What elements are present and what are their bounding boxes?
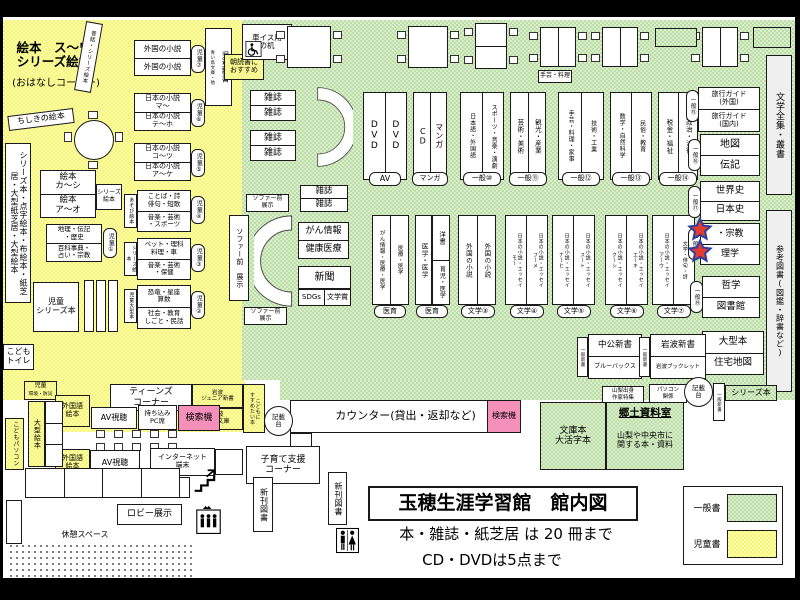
shelf-jido-6-label: 日本の小説 テ〜ホ (135, 112, 190, 131)
chair (578, 32, 587, 40)
shelf-bungaku-3-label: 外国の小説 (459, 216, 477, 304)
shelf-zasshi-label: 雑誌 (251, 105, 295, 120)
corner-shelf (655, 28, 697, 47)
shelf-jido-3-label: 音楽・芸術 ・保健 (138, 259, 190, 280)
shelf-tetsugaku-label: 図書館 (703, 297, 759, 318)
kyukei-space-label: 休憩スペース (54, 529, 116, 542)
pillar (108, 280, 118, 332)
shelf-ehon-ka-shi-label: 絵本 カ〜シ (41, 171, 95, 194)
chair (333, 55, 342, 63)
shelf-sekaishi: 世界史日本史 (700, 181, 760, 221)
shelf-grid (45, 401, 63, 467)
reading-table (287, 26, 331, 68)
shelf-iryo-1-label: がん情報・医療・医学 (373, 216, 390, 304)
kisaidai-desk: 記載 台 (684, 377, 713, 407)
reading-table-label (476, 24, 506, 46)
tag-jido-ogata: 児童大型本 (124, 289, 137, 323)
tag-jido-kankyo-bosai-label: 児童 (25, 382, 56, 391)
shelf-gan-joho-label: 健康医療 (299, 240, 348, 258)
kids-toilet: こども トイレ (3, 344, 34, 370)
shelf-sdgs: SDGs文学賞 (298, 289, 351, 306)
stool (168, 430, 177, 438)
shelf-chizu-denki-label: 地図 (701, 135, 759, 155)
shelf-bungaku-5: 日本の小説・エッセイ ナ〜ヒ日本の小説・エッセイ ス〜ト (552, 215, 595, 305)
shelf-grid-label (46, 444, 62, 466)
lending-limit-books: 本・雑誌・紙芝居 は 20 冊まで (372, 523, 640, 545)
chair (529, 32, 538, 40)
chair (591, 54, 600, 62)
legend-swatch-children (727, 530, 777, 558)
shelf-jido-7-label: 外国の小説 (135, 58, 190, 76)
stool (96, 430, 105, 438)
shelf-ippan-11-label: 観光・産業 (528, 93, 546, 179)
shelf-tetsugaku-label: 哲学 (703, 277, 759, 297)
shelf-bungaku-4-label: 日本の小説・エッセイ フ〜メ (526, 216, 547, 304)
tag-series-ehon: シリーズ 絵本 (96, 184, 122, 210)
shelf-jido-5: 日本の小説 コ〜ツ日本の小説 ア〜ケ (134, 143, 191, 181)
shelf-zasshi-label: 雑誌 (301, 198, 347, 211)
chair (640, 32, 649, 40)
shelf-ippan-10-label: スポーツ・音楽・演劇 (482, 93, 504, 179)
tag-iiku-2: 医育 (416, 305, 448, 318)
reading-table (702, 27, 738, 67)
shelf-bungaku-3-label: 外国の小説 (477, 216, 496, 304)
shelf-bungaku-6-label: 日本の小説・エッセイ ク〜シ (606, 216, 626, 304)
sofa-crescent-2 (254, 211, 301, 311)
tag-ippan-shinsho: 一般新書 (577, 337, 588, 377)
bench (25, 468, 180, 498)
shelf-chizu-denki-label: 伝記 (701, 155, 759, 176)
shelf-ippan-13-label: 数学・自然科学 (611, 93, 631, 179)
shelf-gan-joho: がん情報健康医療 (298, 222, 349, 259)
tag-av: AV (369, 172, 401, 186)
reading-table-label (603, 28, 620, 66)
letterbox-bottom (0, 578, 800, 600)
shelf-zasshi-label: 雑誌 (251, 131, 295, 145)
lobby-display: ロビー展示 (117, 504, 182, 525)
reading-table-label (558, 28, 576, 66)
stool (114, 430, 123, 438)
search-terminal-teens: 検索機 (178, 405, 220, 431)
tag-bungaku-7: 文学⑦ (657, 305, 691, 318)
tag-ippan-17: 一般⑰ (688, 186, 701, 218)
shelf-jido-4: ことば・詩 俳句・短歌音楽・芸術 ・スポーツ (137, 190, 191, 232)
round-table-chair (88, 111, 98, 119)
tag-shugei-ryori: 手芸・料理 (538, 70, 572, 83)
chair (640, 54, 649, 62)
shelf-iryo-1: がん情報・医療・医学医療・医学 (372, 215, 409, 305)
stool (132, 430, 141, 438)
shelf-zasshi: 雑誌雑誌 (250, 90, 296, 121)
letterbox-right (795, 0, 800, 600)
shelf-bungaku-5-label: 日本の小説・エッセイ ナ〜ヒ (553, 216, 573, 304)
shelf-jido-3: ペット・理科 料理・車音楽・芸術 ・保健 (137, 238, 191, 280)
reading-table (540, 27, 576, 67)
bench-label (64, 469, 103, 497)
shelf-sekaishi-label: 世界史 (701, 182, 759, 201)
letterbox-top (0, 0, 800, 17)
chair (333, 31, 342, 39)
tag-iiku-1: 医育 (374, 305, 406, 318)
shelf-bungaku-5-label: 日本の小説・エッセイ ス〜ト (573, 216, 594, 304)
shelf-grid-label (46, 423, 62, 445)
tag-ippan-12: 一般⑫ (562, 172, 600, 186)
shelf-cd-manga-label: マンガ (430, 93, 447, 179)
chair (464, 56, 473, 64)
shelf-ippan-12: 手芸・料理・家事技術・工業 (558, 92, 604, 180)
byod-pc-seat: 持ち込み PC席 (138, 405, 177, 430)
shelf-iwanami-shinsho: 岩波新書岩波ブックレット (650, 334, 706, 379)
kyodo-bunkobon: 文庫本 大活字本 (540, 402, 606, 470)
lending-limit-av: CD・DVDは5点まで (372, 549, 612, 571)
star-icon (686, 239, 714, 265)
shelf-bungaku-4: 日本の小説・エッセイ モ〜日本の小説・エッセイ フ〜メ (505, 215, 548, 305)
chair (450, 55, 459, 63)
shelf-ippan-13: 数学・自然科学民俗・教育 (610, 92, 652, 180)
reading-table (475, 23, 507, 69)
tag-ippan-15: 一般⑮ (686, 90, 699, 122)
shelf-bungaku-3: 外国の小説外国の小説 (458, 215, 496, 305)
shelf-jido-3-label: ペット・理科 料理・車 (138, 239, 190, 259)
tag-jido-2: 児童② (191, 291, 205, 319)
bench-label (141, 469, 180, 497)
tag-pasokon-kankei: パソコン 関係 (649, 384, 687, 403)
tag-jido-kankyo-bosai-label: 環境・防災 (25, 391, 56, 400)
shelf-dvd-label: DVD (385, 93, 407, 179)
kyodo-room-desc: 山梨や中央市に 関する本・資料 (607, 424, 683, 458)
shelf-jido-6-label: 日本の小説 マ〜 (135, 94, 190, 112)
tag-yamanashi-sakka: 山梨出身 作家特集 (602, 386, 644, 403)
shelf-bungaku-4-label: 日本の小説・エッセイ モ〜 (506, 216, 526, 304)
shelf-sdgs-label: 文学賞 (324, 290, 350, 305)
shelf-jido-4-label: 音楽・芸術 ・スポーツ (138, 211, 190, 232)
shelf-jido-5-label: 日本の小説 ア〜ケ (135, 162, 190, 181)
shelf-jido-series: 児童 シリーズ本 (33, 282, 79, 332)
chair (397, 31, 406, 39)
sofa-front-display-label: ソファー前 展示 (246, 194, 289, 212)
shelf-zasshi-label: 雑誌 (251, 91, 295, 105)
shelf-iryo-2a: 医学・医学 (415, 215, 432, 305)
chair (578, 54, 587, 62)
sofa-crescent-1 (307, 86, 353, 168)
chair (740, 32, 749, 40)
shelf-chiri-denki-label: 百科事典・ 占い・宗教 (47, 243, 101, 262)
chair (529, 54, 538, 62)
shelf-chiri-denki: 地理・伝記 ・歴史百科事典・ 占い・宗教 (46, 224, 102, 262)
legend-label-general: 一般書 (688, 497, 726, 521)
tag-bungaku-6: 文学⑥ (610, 305, 644, 318)
shelf-zasshi-label: 雑誌 (301, 186, 347, 198)
tag-ippan-shinsho: 一般新書 (639, 337, 650, 377)
tag-ippan-shinsho: 一般新書 (713, 383, 725, 421)
shelf-jido-shinsho-label: 青い鳥文庫・他 (206, 29, 219, 105)
shelf-cd-manga: CDマンガ (413, 92, 447, 180)
elevator-icon (196, 505, 221, 534)
stairs-icon (192, 467, 219, 493)
shelf-jido-2-label: 恐竜・星座 算数 (138, 286, 190, 307)
shelf-iwanami-shinsho-label: 岩波新書 (651, 335, 705, 356)
pillar (84, 280, 94, 332)
shelf-ippan-14-label: 税金・福祉 (659, 93, 678, 179)
tag-ippan-10: 一般⑩ (463, 172, 501, 186)
side-booth (215, 449, 243, 475)
shelf-jido-2-label: 社会・教育 しごと・民話 (138, 307, 190, 329)
tag-jido-3: 児童③ (191, 244, 205, 272)
shelf-jido-7-label: 外国の小説 (135, 41, 190, 58)
letterbox-left (0, 0, 3, 600)
bench-label (26, 469, 64, 497)
shelf-ryoko-guide-label: 旅行ガイド (国内) (699, 109, 759, 131)
shelf-ippan-12-label: 手芸・料理・家事 (559, 93, 581, 179)
reading-table-label (541, 28, 558, 66)
shelf-zasshi-label: 雑誌 (251, 145, 295, 160)
tag-kodomo-susume: こどもに すすめたい本 (243, 384, 265, 433)
corner-shelf (753, 27, 791, 48)
tag-jido-4: 児童④ (191, 196, 205, 224)
sofa-front-display-label-v: ソファー前 展示 (229, 215, 249, 301)
shelf-chiri-denki-label: 地理・伝記 ・歴史 (47, 225, 101, 243)
shelf-ippan-10-label: 日本語・外国語 (461, 93, 482, 179)
reading-table-label (703, 28, 720, 66)
bench-label (102, 469, 141, 497)
shelf-shinkan-tosho: 新刊図書 (253, 477, 273, 532)
shelf-ehon-ka-shi-label: 絵本 ア〜オ (41, 194, 95, 218)
shelf-ehon-ka-shi: 絵本 カ〜シ絵本 ア〜オ (40, 170, 96, 218)
map-title: 玉穂生涯学習館 館内図 (368, 486, 638, 521)
shelf-jido-4-label: ことば・詩 俳句・短歌 (138, 191, 190, 211)
shelf-jido-5-label: 日本の小説 コ〜ツ (135, 144, 190, 162)
tag-ippan-11: 一般⑪ (509, 172, 547, 186)
shelf-ippan-11-label: 芸術・美術 (511, 93, 528, 179)
round-table-chair (88, 161, 98, 169)
chair (276, 31, 285, 39)
legend-swatch-general (727, 494, 777, 522)
reading-table-label (476, 46, 506, 69)
tag-bungaku-3: 文学③ (461, 305, 495, 318)
kisaidai-desk: 記載 台 (264, 406, 293, 436)
chair (276, 55, 285, 63)
tag-jido-6: 児童⑥ (191, 99, 205, 127)
chair (591, 32, 600, 40)
shelf-gan-joho-label: がん情報 (299, 223, 348, 240)
reading-table (602, 27, 638, 67)
shelf-ippan-11: 芸術・美術観光・産業 (510, 92, 546, 180)
shelf-bungaku-6: 日本の小説・エッセイ ク〜シ日本の小説・エッセイ エ〜キ (605, 215, 648, 305)
shelf-jido-6: 日本の小説 マ〜日本の小説 テ〜ホ (134, 93, 191, 131)
pillar (96, 280, 106, 332)
shelf-series-bon: シリーズ本 (725, 385, 777, 401)
chair (509, 56, 518, 64)
library-floor-map: 絵本 ス〜ワ シリーズ絵本(おはなしコーナー)昔話・シリーズ絵本ちしきの絵本絵本… (0, 0, 800, 600)
shelf-jido-2: 恐竜・星座 算数社会・教育 しごと・民話 (137, 285, 191, 329)
chair (740, 54, 749, 62)
shelf-shinbun: 新聞 (298, 266, 351, 289)
shelf-iryo-2b-label: 洋書 (433, 216, 449, 260)
chair (509, 28, 518, 36)
shelf-zasshi: 雑誌雑誌 (250, 130, 296, 161)
search-terminal-main: 検索機 (487, 400, 521, 433)
wheelchair-icon (245, 41, 262, 57)
shelf-ippan-10: 日本語・外国語スポーツ・音楽・演劇 (460, 92, 504, 180)
chair (691, 54, 700, 62)
shelf-sanko-tosho: 参考図書(図鑑・辞書など) (766, 210, 792, 392)
stool (150, 430, 159, 438)
shelf-dvd: DVDDVD (363, 92, 407, 180)
shelf-ryoko-guide: 旅行ガイド (外国)旅行ガイド (国内) (698, 87, 760, 132)
kyukei-space-area (8, 543, 193, 577)
locker (6, 500, 22, 544)
shelf-iryo-2b: 洋書育児・医学 (432, 215, 450, 305)
reading-table-label (620, 28, 638, 66)
chair (450, 31, 459, 39)
shelf-bungaku-zenshu: 文学全集・叢書 (766, 55, 792, 195)
av-booth: AV視聴 (91, 407, 137, 429)
shelf-ogata-ehon: 大型絵本 (28, 401, 45, 467)
tag-series-ehon-2: シリーズ絵本 (124, 242, 137, 276)
round-table-chair (115, 132, 123, 142)
reading-table-label (720, 28, 738, 66)
tag-jido-1: 児童① (103, 228, 117, 258)
shelf-ogatabon-label: 住宅地図 (703, 353, 763, 375)
tag-manga: マンガ (412, 172, 448, 186)
shelf-chizu-denki: 地図伝記 (700, 134, 760, 176)
round-table-chair (64, 132, 72, 142)
shelf-chuko-shinsho: 中公新書ブルーバックス (588, 334, 642, 379)
shelf-iryo-1-label: 医療・医学 (390, 216, 408, 304)
tag-asobi-ehon: あそび絵本 (124, 194, 137, 228)
tag-bungaku-5: 文学⑤ (557, 305, 591, 318)
shelf-sdgs-label: SDGs (299, 290, 324, 305)
shelf-left-strip: シリーズ本・点字絵本・布絵本・紙芝居・大型紙芝居・大型絵本 (5, 143, 31, 303)
tag-bungaku-4: 文学④ (510, 305, 544, 318)
tag-ippan-19: 一般⑲ (690, 281, 703, 313)
shelf-ogatabon-label: 大型本 (703, 332, 763, 353)
kids-pc: こどもパソコン (5, 418, 24, 470)
tag-ippan-13: 一般⑬ (612, 172, 650, 186)
shelf-bungaku-6-label: 日本の小説・エッセイ エ〜キ (626, 216, 647, 304)
toilet-icon (336, 526, 359, 555)
shelf-grid-label (46, 402, 62, 423)
tag-ippan-14: 一般⑭ (659, 172, 697, 186)
kyodo-room-title: 郷土資料室 (608, 406, 682, 422)
shelf-ryoko-guide-label: 旅行ガイド (外国) (699, 88, 759, 109)
shelf-chuko-shinsho-label: 中公新書 (589, 335, 641, 356)
shelf-ippan-12-label: 技術・工業 (581, 93, 604, 179)
shelf-cd-manga-label: CD (414, 93, 430, 179)
tag-ippan-16: 一般⑯ (688, 139, 701, 171)
shelf-dvd-label: DVD (364, 93, 385, 179)
shelf-chuko-shinsho-label: ブルーバックス (589, 356, 641, 378)
round-table (74, 120, 114, 160)
chair (464, 28, 473, 36)
shelf-tetsugaku: 哲学図書館 (702, 276, 760, 318)
legend-label-children: 児童書 (688, 533, 726, 557)
shelf-ippan-13-label: 民俗・教育 (631, 93, 652, 179)
shelf-ogatabon: 大型本住宅地図 (702, 331, 764, 375)
tag-jido-5: 児童⑤ (191, 149, 205, 177)
shelf-iryo-2b-label: 育児・医学 (433, 260, 449, 305)
chair (397, 55, 406, 63)
shelf-jido-7: 外国の小説外国の小説 (134, 40, 191, 76)
reading-table (408, 26, 448, 68)
tag-jido-kankyo-bosai: 児童環境・防災 (24, 381, 57, 400)
shelf-bungaku-7-label: 日本の小説・エッセイ ア〜ウ (653, 216, 673, 304)
shelf-iwanami-shinsho-label: 岩波ブックレット (651, 356, 705, 378)
tag-jido-7: 児童⑦ (191, 45, 205, 73)
shelf-shinkan-tosho: 新刊図書 (328, 472, 347, 525)
shelf-zasshi: 雑誌雑誌 (300, 185, 348, 212)
